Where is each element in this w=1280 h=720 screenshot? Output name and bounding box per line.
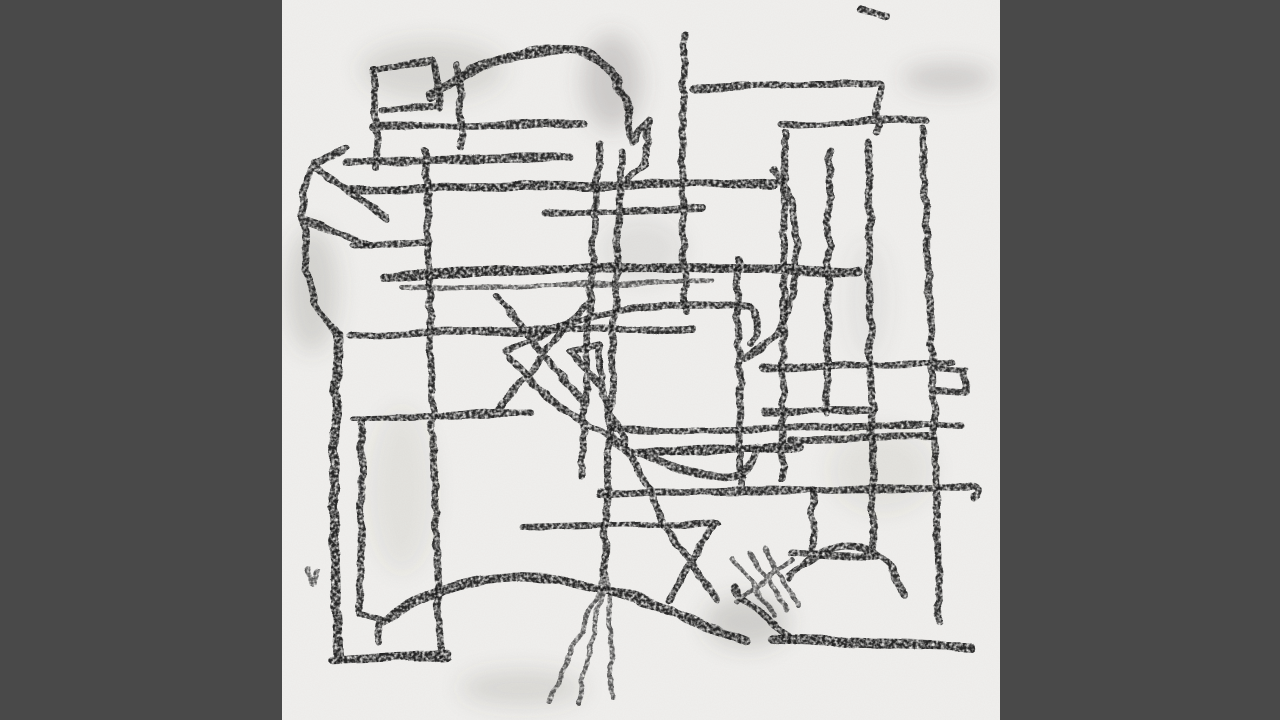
smudge bbox=[460, 670, 584, 706]
smudge bbox=[902, 64, 994, 92]
artwork-image bbox=[282, 0, 1000, 720]
letterbox-bar-right bbox=[1000, 0, 1280, 720]
video-frame: { "scene": { "type": "abstract artwork s… bbox=[0, 0, 1280, 720]
abstract-drawing bbox=[282, 0, 1000, 720]
smudge bbox=[370, 408, 434, 572]
smudge bbox=[582, 34, 642, 130]
letterbox-bar-left bbox=[0, 0, 282, 720]
left-long-vertical-stroke bbox=[334, 337, 339, 658]
